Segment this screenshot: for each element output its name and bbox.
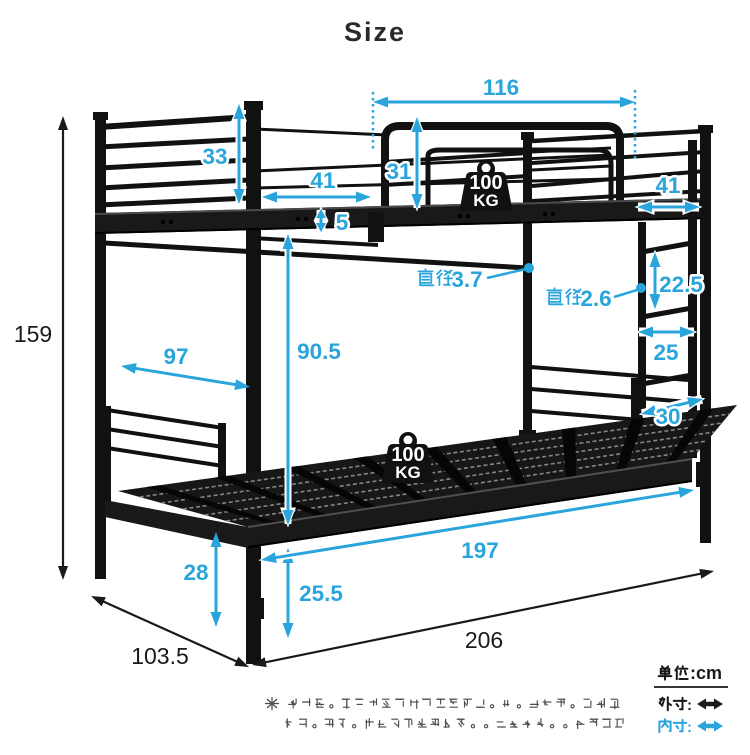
svg-text:33: 33 [202,144,227,169]
svg-text:25: 25 [653,340,678,365]
svg-text::cm: :cm [690,663,722,683]
svg-text:103.5: 103.5 [131,643,189,669]
svg-text:41: 41 [655,173,680,198]
svg-text::: : [687,719,692,736]
svg-text:5: 5 [336,210,349,235]
svg-text:116: 116 [483,75,519,100]
svg-text:31: 31 [386,159,411,184]
svg-text::: : [687,697,692,714]
svg-text:KG: KG [473,191,499,210]
svg-text:22.5: 22.5 [659,272,703,297]
svg-text:KG: KG [395,463,421,482]
svg-text:3.7: 3.7 [451,267,482,292]
svg-text:90.5: 90.5 [297,339,341,364]
svg-text:30: 30 [655,404,680,429]
svg-text:2.6: 2.6 [580,286,611,311]
svg-text:41: 41 [310,168,335,193]
svg-text:206: 206 [465,627,503,653]
svg-text:Size: Size [344,17,406,47]
svg-text:159: 159 [14,321,52,347]
svg-text:25.5: 25.5 [299,581,343,606]
svg-text:197: 197 [461,538,499,563]
svg-text:97: 97 [163,344,188,369]
svg-text:28: 28 [183,560,208,585]
